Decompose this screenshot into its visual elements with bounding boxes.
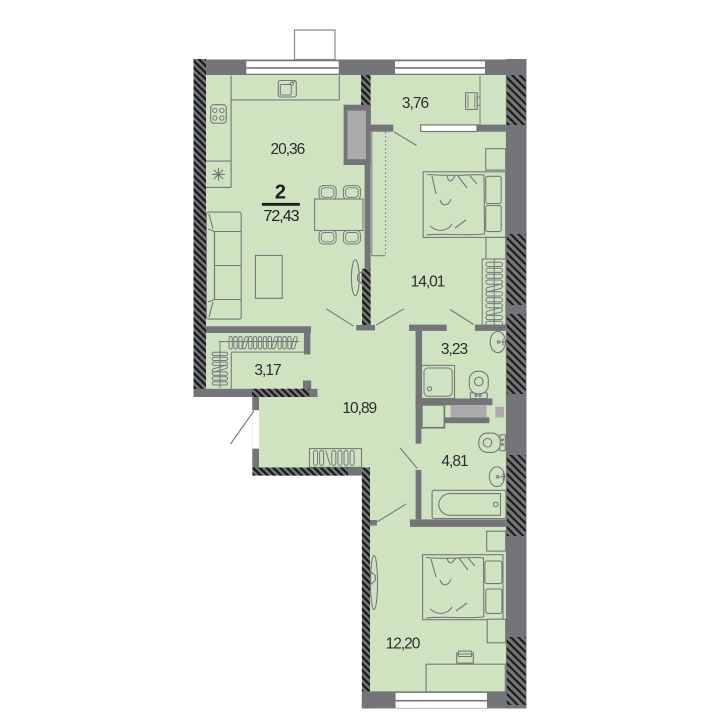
svg-text:2: 2 — [275, 182, 286, 204]
svg-text:3,23: 3,23 — [441, 341, 468, 358]
svg-text:3,76: 3,76 — [402, 95, 429, 112]
svg-text:20,36: 20,36 — [271, 141, 305, 158]
svg-text:72,43: 72,43 — [263, 208, 299, 225]
svg-text:14,01: 14,01 — [411, 274, 445, 291]
svg-text:12,20: 12,20 — [386, 635, 421, 652]
svg-text:4,81: 4,81 — [441, 453, 468, 470]
svg-text:3,17: 3,17 — [254, 362, 281, 379]
svg-text:10,89: 10,89 — [342, 400, 376, 417]
